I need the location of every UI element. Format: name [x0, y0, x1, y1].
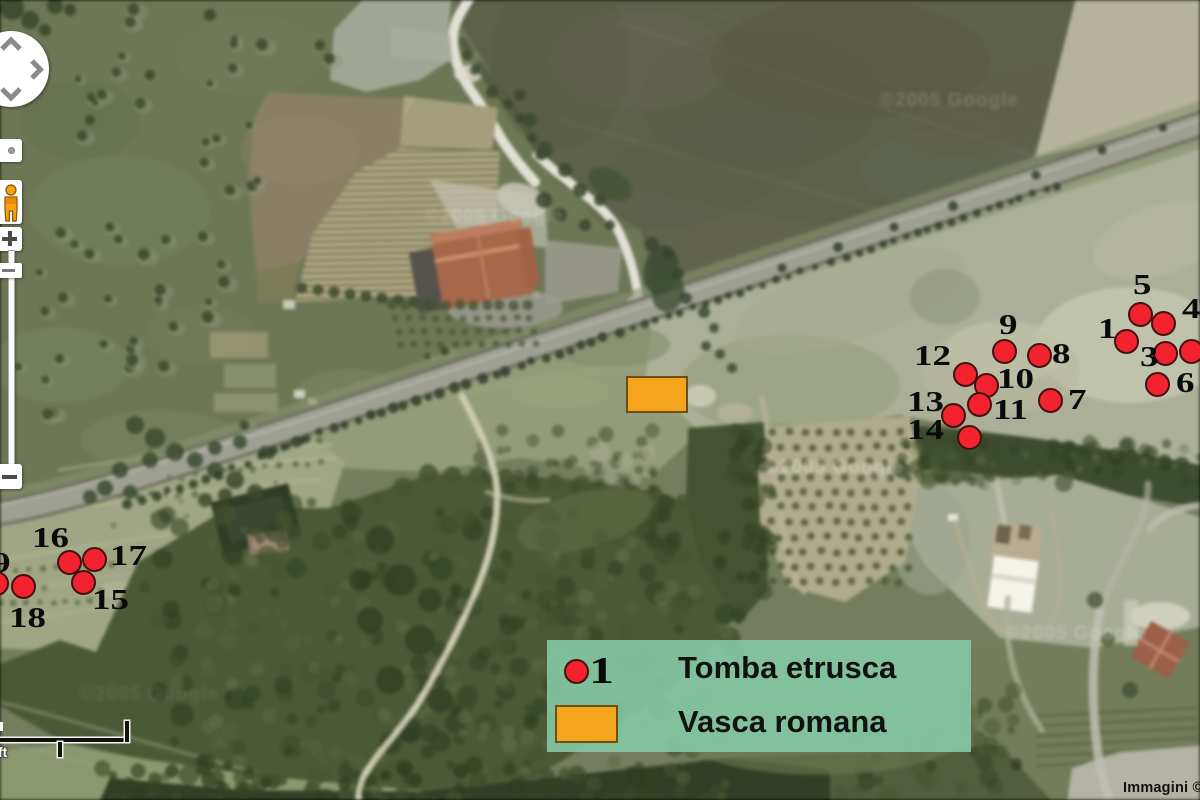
svg-text:©2005 Google: ©2005 Google	[880, 90, 1019, 111]
svg-text:©2005 Google: ©2005 Google	[80, 684, 219, 705]
svg-text:©2005 Google: ©2005 Google	[1006, 623, 1145, 644]
svg-text:©2005 Google: ©2005 Google	[765, 457, 904, 478]
svg-text:©2005 Google: ©2005 Google	[425, 206, 564, 227]
